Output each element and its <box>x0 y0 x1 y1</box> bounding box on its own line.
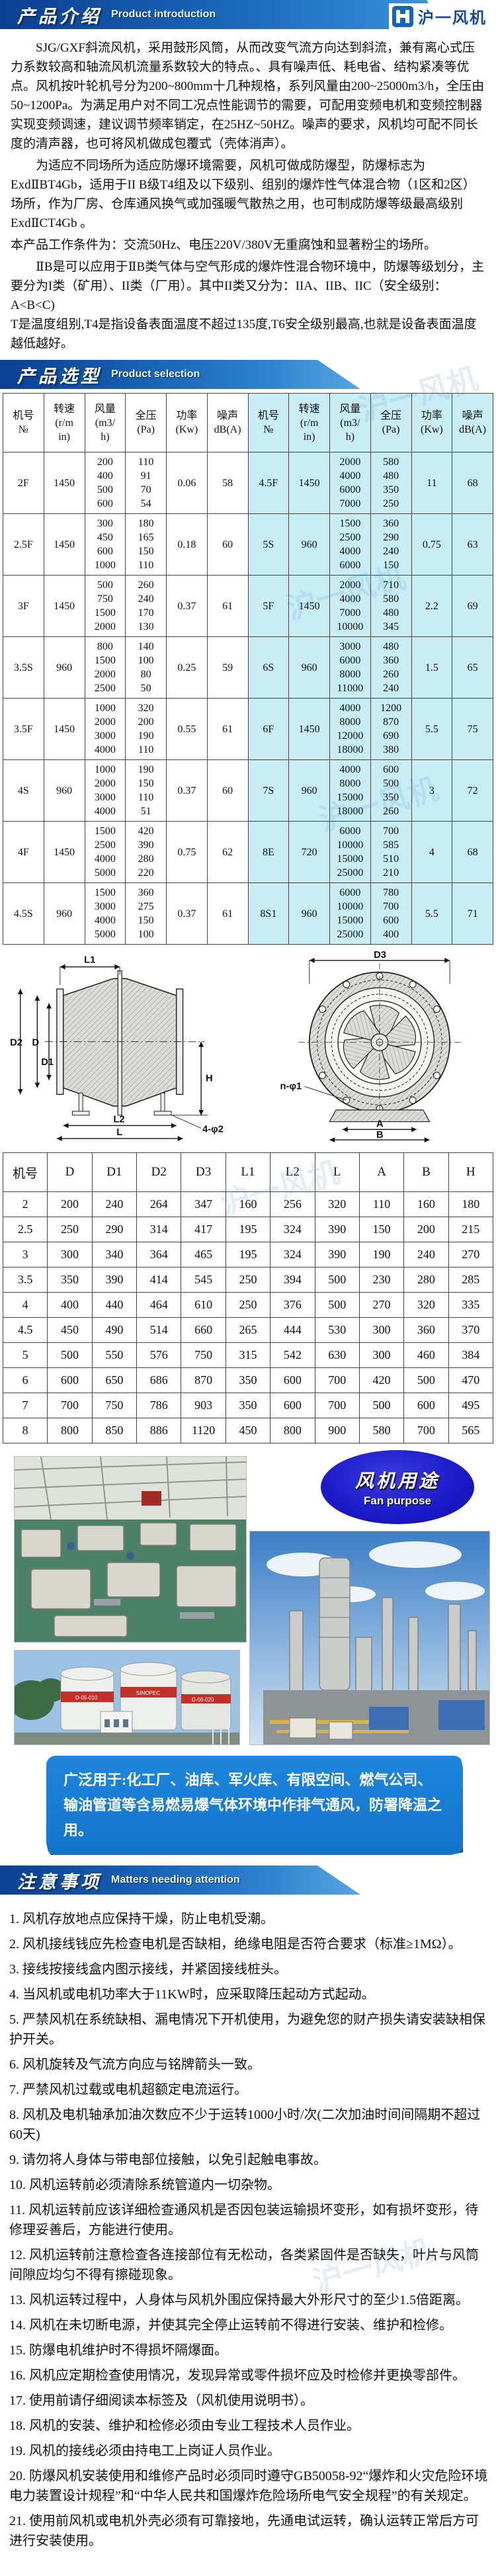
dimension-cell: 250 <box>226 1293 270 1318</box>
dimension-cell: 250 <box>48 1217 92 1242</box>
brand-logo-icon <box>392 5 414 28</box>
noise-cell: 65 <box>452 637 493 699</box>
noise-cell: 59 <box>207 637 248 699</box>
power-cell: 1.5 <box>411 637 452 699</box>
dimension-row: 2200240264347160256320110160180 <box>3 1192 493 1217</box>
pressure-cell: 420 390 280 220 <box>126 822 167 883</box>
flow-cell: 6000 10000 15000 25000 <box>330 883 371 945</box>
attention-item: 8. 风机及电机轴承加油次数应不少于运转1000小时/次(二次加油时间间隔期不超… <box>9 2105 488 2145</box>
speed-cell: 960 <box>289 883 330 945</box>
oil-storage-tanks-photo: D-05-010SINOPECD-06-020 <box>15 1651 239 1744</box>
dimension-cell: 270 <box>359 1293 403 1318</box>
dimension-cell: 160 <box>404 1192 448 1217</box>
model-cell: 3.5S <box>3 637 44 699</box>
intro-paragraph: ⅡB是可以应用于ⅡB类气体与空气形成的爆炸性混合物环境中，防爆等级划分，主要分为… <box>11 257 485 353</box>
model-cell: 8E <box>248 822 289 883</box>
dimension-column-header: D1 <box>92 1153 136 1192</box>
attention-item: 1. 风机存放地点应保持干燥，防止电机受潮。 <box>9 1909 488 1929</box>
dimension-column-header: 机号 <box>3 1153 48 1192</box>
power-cell: 0.55 <box>167 699 208 760</box>
purpose-badge: 风机用途 Fan purpose <box>321 1450 474 1524</box>
dimension-cell: 514 <box>137 1318 181 1343</box>
power-cell: 0.06 <box>167 452 208 514</box>
dimension-column-header: A <box>359 1153 403 1192</box>
brand-logo-text: 沪一风机 <box>418 5 487 28</box>
dimension-cell: 600 <box>270 1368 315 1393</box>
selection-row: 3F1450500 750 1500 2000260 240 170 1300.… <box>3 576 493 637</box>
attention-item: 20. 防爆风机安装使用和维修产品时必须同时遵守GB50058-92“爆炸和火灾… <box>9 2466 488 2506</box>
dimension-row: 4.5450490514660265444530300360370 <box>3 1318 493 1343</box>
dimension-cell: 4.5 <box>3 1318 48 1343</box>
noise-cell: 61 <box>207 576 248 637</box>
noise-cell: 69 <box>452 576 493 637</box>
dimension-row: 2.5250290314417195324390150200215 <box>3 1217 493 1242</box>
dimension-column-header: D3 <box>181 1153 226 1192</box>
dimension-cell: 3 <box>3 1242 48 1267</box>
selection-row: 3.5S960800 1500 2000 2500140 100 80 500.… <box>3 637 493 699</box>
pressure-cell: 1200 870 690 380 <box>370 699 411 760</box>
power-cell: 0.37 <box>167 883 208 945</box>
dimension-cell: 300 <box>359 1318 403 1343</box>
svg-text:D-05-010: D-05-010 <box>75 1695 98 1701</box>
dimension-cell: 610 <box>181 1293 226 1318</box>
pressure-cell: 700 585 510 210 <box>370 822 411 883</box>
dimension-cell: 2.5 <box>3 1217 48 1242</box>
dimension-cell: 465 <box>181 1242 226 1267</box>
dimension-cell: 256 <box>270 1192 315 1217</box>
dimension-cell: 470 <box>448 1368 493 1393</box>
model-cell: 4S <box>3 760 44 822</box>
dimension-cell: 550 <box>92 1343 136 1368</box>
attention-item: 6. 风机旋转及气流方向应与铭牌箭头一致。 <box>9 2055 488 2075</box>
dimension-cell: 160 <box>226 1192 270 1217</box>
flow-cell: 300 450 600 1000 <box>85 514 126 576</box>
attention-item: 13. 风机运转过程中，人身体与风机外围应保持最大外形尺寸的至少1.5倍距离。 <box>9 2290 488 2310</box>
dimension-cell: 250 <box>226 1267 270 1293</box>
flow-cell: 6000 10000 15000 25000 <box>330 822 371 883</box>
pressure-cell: 580 480 350 250 <box>370 452 411 514</box>
dimension-cell: 195 <box>226 1217 270 1242</box>
flow-cell: 500 750 1500 2000 <box>85 576 126 637</box>
svg-text:SINOPEC: SINOPEC <box>136 1690 160 1696</box>
dimension-cell: 5 <box>3 1343 48 1368</box>
attention-item: 15. 防爆电机维护时不得损坏隔爆面。 <box>9 2340 488 2360</box>
dim-label-L1: L1 <box>84 955 95 966</box>
dimension-column-header: H <box>448 1153 493 1192</box>
dimension-cell: 886 <box>137 1418 181 1443</box>
speed-cell: 1450 <box>44 576 85 637</box>
flow-cell: 4000 8000 12000 18000 <box>330 699 371 760</box>
power-cell: 11 <box>411 452 452 514</box>
dimension-cell: 200 <box>48 1192 92 1217</box>
dimension-row: 3300340364465195324390190240270 <box>3 1242 493 1267</box>
selection-row: 4.5S9601500 3000 4000 5000360 275 150 10… <box>3 883 493 945</box>
dimension-cell: 850 <box>92 1418 136 1443</box>
selection-column-header: 全压 (Pa) <box>370 394 411 452</box>
dimension-cell: 314 <box>137 1217 181 1242</box>
pressure-cell: 360 275 150 100 <box>126 883 167 945</box>
product-page: 沪一风机 沪一风机 沪一风机 沪一风机 沪一风机 沪一风机 产品介绍 Produ… <box>0 0 496 2576</box>
selection-column-header: 转速 (r/m in) <box>289 394 330 452</box>
dimension-row: 7700750786903350600700500600495 <box>3 1393 493 1418</box>
power-cell: 5.5 <box>411 883 452 945</box>
dim-label-bolt-holes: n-φ1 <box>280 1081 302 1092</box>
dimension-cell: 580 <box>359 1418 403 1443</box>
dimension-cell: 630 <box>315 1343 359 1368</box>
attention-title: 注意事项 <box>17 1868 102 1893</box>
purpose-title: 风机用途 <box>355 1467 440 1493</box>
dimension-cell: 215 <box>448 1217 493 1242</box>
dimension-table-header-row: 机号DD1D2D3L1L2LABH <box>3 1153 493 1192</box>
dimension-cell: 3.5 <box>3 1267 48 1293</box>
dim-label-D3: D3 <box>374 951 386 961</box>
dimension-cell: 300 <box>48 1242 92 1267</box>
dimension-cell: 420 <box>359 1368 403 1393</box>
pressure-cell: 180 165 150 110 <box>126 514 167 576</box>
dimension-cell: 290 <box>92 1217 136 1242</box>
pressure-cell: 190 150 110 51 <box>126 760 167 822</box>
selection-column-header: 噪声 dB(A) <box>452 394 493 452</box>
attention-item: 10. 风机运转前必须清除系统管道内一切杂物。 <box>9 2175 488 2195</box>
dimension-column-header: B <box>404 1153 448 1192</box>
pressure-cell: 110 91 70 54 <box>126 452 167 514</box>
attention-item: 11. 风机运转前应该详细检查通风机是否因包装运输损坏变形，如有损坏变形，待修理… <box>9 2200 488 2240</box>
model-cell: 7S <box>248 760 289 822</box>
application-banner: 广泛用于:化工厂、油库、军火库、有限空间、燃气公司、输油管道等含易燃易爆气体环境… <box>46 1756 463 1855</box>
speed-cell: 1450 <box>44 822 85 883</box>
power-cell: 0.37 <box>167 760 208 822</box>
dim-label-H: H <box>206 1074 213 1084</box>
attention-item: 5. 严禁风机在系统缺相、漏电情况下开机使用，为避免您的财产损失请安装缺相保护开… <box>9 2010 488 2049</box>
dim-label-B: B <box>376 1130 384 1140</box>
dimension-cell: 542 <box>270 1343 315 1368</box>
dimension-cell: 320 <box>404 1293 448 1318</box>
dimension-cell: 270 <box>448 1242 493 1267</box>
intro-paragraph: 本产品工作条件为：交流50Hz、电压220V/380V无重腐蚀和显著粉尘的场所。 <box>11 236 485 255</box>
selection-row: 2F1450200 400 500 600110 91 70 540.06584… <box>3 452 493 514</box>
dimension-cell: 320 <box>315 1192 359 1217</box>
attention-item: 18. 风机的安装、维护和检修必须由专业工程技术人员作业。 <box>9 2416 488 2436</box>
dimension-column-header: D <box>48 1153 92 1192</box>
power-cell: 4 <box>411 822 452 883</box>
purpose-section: 风机用途 Fan purpose <box>0 1449 496 1746</box>
dimension-cell: 576 <box>137 1343 181 1368</box>
dimension-cell: 500 <box>359 1393 403 1418</box>
model-cell: 5S <box>248 514 289 576</box>
selection-title-en: Product selection <box>111 368 200 380</box>
chemical-plant-photo <box>250 1531 489 1744</box>
model-cell: 2.5F <box>3 514 44 576</box>
dim-label-L2: L2 <box>113 1115 124 1125</box>
speed-cell: 1450 <box>289 576 330 637</box>
dim-label-A: A <box>376 1119 384 1129</box>
dimension-row: 3.5350390414545250394500230280285 <box>3 1267 493 1293</box>
dimension-cell: 285 <box>448 1267 493 1293</box>
attention-item: 7. 严禁风机过载或电机超额定电流运行。 <box>9 2080 488 2100</box>
page-title: 产品介绍 <box>17 2 102 28</box>
dimension-cell: 265 <box>226 1318 270 1343</box>
speed-cell: 1450 <box>44 699 85 760</box>
pressure-cell: 140 100 80 50 <box>126 637 167 699</box>
speed-cell: 960 <box>289 514 330 576</box>
power-cell: 3 <box>411 760 452 822</box>
dimension-cell: 700 <box>48 1393 92 1418</box>
dimension-cell: 800 <box>270 1418 315 1443</box>
intro-paragraph: SJG/GXF斜流风机，采用鼓形风筒，从而改变气流方向达到斜流，兼有离心式压力系… <box>11 38 485 153</box>
dimension-cell: 464 <box>137 1293 181 1318</box>
flow-cell: 2000 4000 7000 10000 <box>330 576 371 637</box>
dimension-cell: 264 <box>137 1192 181 1217</box>
selection-row: 2.5F1450300 450 600 1000180 165 150 1100… <box>3 514 493 576</box>
dimension-cell: 315 <box>226 1343 270 1368</box>
dimension-cell: 750 <box>181 1343 226 1368</box>
dimension-cell: 750 <box>92 1393 136 1418</box>
dimension-cell: 190 <box>359 1242 403 1267</box>
dimension-cell: 450 <box>48 1318 92 1343</box>
flow-cell: 3000 6000 8000 11000 <box>330 637 371 699</box>
dim-label-L: L <box>116 1127 122 1138</box>
attention-banner: 注意事项 Matters needing attention <box>0 1866 360 1895</box>
noise-cell: 71 <box>452 883 493 945</box>
dimension-cell: 7 <box>3 1393 48 1418</box>
pressure-cell: 600 500 350 260 <box>370 760 411 822</box>
dimension-cell: 686 <box>137 1368 181 1393</box>
pressure-cell: 260 240 170 130 <box>126 576 167 637</box>
flow-cell: 1000 2000 3000 4000 <box>85 760 126 822</box>
selection-column-header: 风量 (m3/ h) <box>85 394 126 452</box>
model-cell: 3F <box>3 576 44 637</box>
dimension-cell: 460 <box>404 1343 448 1368</box>
dimension-cell: 394 <box>270 1267 315 1293</box>
dimension-cell: 600 <box>404 1393 448 1418</box>
flow-cell: 200 400 500 600 <box>85 452 126 514</box>
selection-column-header: 功率 (Kw) <box>167 394 208 452</box>
selection-column-header: 功率 (Kw) <box>411 394 452 452</box>
pressure-cell: 320 200 190 110 <box>126 699 167 760</box>
dimension-cell: 364 <box>137 1242 181 1267</box>
application-text: 广泛用于:化工厂、油库、军火库、有限空间、燃气公司、输油管道等含易燃易爆气体环境… <box>63 1768 446 1843</box>
dimension-column-header: L <box>315 1153 359 1192</box>
speed-cell: 1450 <box>289 452 330 514</box>
power-cell: 0.75 <box>167 822 208 883</box>
dimension-cell: 495 <box>448 1393 493 1418</box>
selection-column-header: 全压 (Pa) <box>126 394 167 452</box>
dimension-cell: 450 <box>226 1418 270 1443</box>
noise-cell: 63 <box>452 514 493 576</box>
dimension-cell: 500 <box>404 1368 448 1393</box>
dimension-cell: 376 <box>270 1293 315 1318</box>
selection-table: 机号 №转速 (r/m in)风量 (m3/ h)全压 (Pa)功率 (Kw)噪… <box>3 393 493 945</box>
model-cell: 5F <box>248 576 289 637</box>
dimension-cell: 414 <box>137 1267 181 1293</box>
selection-column-header: 风量 (m3/ h) <box>330 394 371 452</box>
dimension-cell: 324 <box>270 1242 315 1267</box>
dimension-cell: 700 <box>315 1368 359 1393</box>
dimension-cell: 565 <box>448 1418 493 1443</box>
noise-cell: 62 <box>207 822 248 883</box>
attention-item: 4. 当风机或电机功率大于11KW时，应采取降压起动方式起动。 <box>9 1985 488 2004</box>
fan-side-view-diagram: L1 D2 D D1 H L2 L 4-φ2 <box>4 951 252 1143</box>
dimension-cell: 195 <box>226 1242 270 1267</box>
noise-cell: 72 <box>452 760 493 822</box>
selection-row: 3.5F14501000 2000 3000 4000320 200 190 1… <box>3 699 493 760</box>
fan-front-view-diagram: D3 A B n-φ1 <box>264 951 492 1143</box>
dimension-cell: 870 <box>181 1368 226 1393</box>
dimension-cell: 417 <box>181 1217 226 1242</box>
dimension-cell: 600 <box>48 1368 92 1393</box>
model-cell: 6F <box>248 699 289 760</box>
dimension-row: 6600650686870350600700420500470 <box>3 1368 493 1393</box>
dimension-cell: 340 <box>92 1242 136 1267</box>
model-cell: 3.5F <box>3 699 44 760</box>
dimension-cell: 1120 <box>181 1418 226 1443</box>
speed-cell: 720 <box>289 822 330 883</box>
dimension-cell: 230 <box>359 1267 403 1293</box>
dimension-cell: 4 <box>3 1293 48 1318</box>
model-cell: 4F <box>3 822 44 883</box>
dimension-cell: 500 <box>315 1293 359 1318</box>
selection-column-header: 机号 № <box>248 394 289 452</box>
power-cell: 2.2 <box>411 576 452 637</box>
dimension-cell: 400 <box>48 1293 92 1318</box>
selection-title: 产品选型 <box>17 362 102 388</box>
pressure-cell: 480 360 260 240 <box>370 637 411 699</box>
attention-list: 1. 风机存放地点应保持干燥，防止电机受潮。2. 风机接线钱应先检查电机是否缺相… <box>0 1895 496 2576</box>
intro-paragraph: 为适应不同场所为适应防爆环境需要，风机可做成防爆型，防爆标志为ExdⅡBT4Gb… <box>11 156 485 233</box>
model-cell: 8S1 <box>248 883 289 945</box>
flow-cell: 4000 8000 15000 18000 <box>330 760 371 822</box>
dimension-cell: 500 <box>48 1343 92 1368</box>
dimension-cell: 180 <box>448 1192 493 1217</box>
dimension-cell: 500 <box>315 1267 359 1293</box>
attention-item: 2. 风机接线钱应先检查电机是否缺相，绝缘电阻是否符合要求（标准≥1MΩ）。 <box>9 1934 488 1954</box>
dimension-cell: 660 <box>181 1318 226 1343</box>
dimension-table: 机号DD1D2D3L1L2LABH 2200240264347160256320… <box>3 1152 493 1443</box>
selection-column-header: 噪声 dB(A) <box>207 394 248 452</box>
selection-row: 4F14501500 2500 4000 5000420 390 280 220… <box>3 822 493 883</box>
noise-cell: 68 <box>452 822 493 883</box>
selection-table-header-row: 机号 №转速 (r/m in)风量 (m3/ h)全压 (Pa)功率 (Kw)噪… <box>3 394 493 452</box>
flow-cell: 1500 2500 4000 5000 <box>85 822 126 883</box>
dimension-cell: 240 <box>92 1192 136 1217</box>
dimension-cell: 360 <box>404 1318 448 1343</box>
noise-cell: 61 <box>207 883 248 945</box>
dim-label-D2: D2 <box>10 1038 22 1049</box>
dimension-cell: 350 <box>48 1267 92 1293</box>
model-cell: 4.5F <box>248 452 289 514</box>
model-cell: 4.5S <box>3 883 44 945</box>
dimension-cell: 6 <box>3 1368 48 1393</box>
dimension-cell: 2 <box>3 1192 48 1217</box>
dimension-column-header: D2 <box>137 1153 181 1192</box>
noise-cell: 61 <box>207 699 248 760</box>
power-cell: 0.18 <box>167 514 208 576</box>
dimension-cell: 200 <box>404 1217 448 1242</box>
dimension-cell: 110 <box>359 1192 403 1217</box>
speed-cell: 1450 <box>289 699 330 760</box>
dimension-cell: 490 <box>92 1318 136 1343</box>
dimension-cell: 384 <box>448 1343 493 1368</box>
attention-item: 16. 风机应定期检查使用情况，发现异常或零件损坏应及时检修并更换零部件。 <box>9 2366 488 2385</box>
dimension-cell: 903 <box>181 1393 226 1418</box>
attention-item: 3. 接线按接线盒内图示接线，并紧固接线桩头。 <box>9 1959 488 1979</box>
speed-cell: 960 <box>44 760 85 822</box>
dimension-cell: 700 <box>404 1418 448 1443</box>
power-cell: 5.5 <box>411 699 452 760</box>
dimension-diagrams: L1 D2 D D1 H L2 L 4-φ2 <box>0 945 496 1143</box>
noise-cell: 58 <box>207 452 248 514</box>
page-title-en: Product introduction <box>111 9 216 21</box>
dimension-cell: 530 <box>315 1318 359 1343</box>
flow-cell: 1500 3000 4000 5000 <box>85 883 126 945</box>
dimension-cell: 150 <box>359 1217 403 1242</box>
attention-title-en: Matters needing attention <box>111 1874 240 1886</box>
dimension-cell: 240 <box>404 1242 448 1267</box>
pressure-cell: 780 700 600 400 <box>370 883 411 945</box>
dim-label-D: D <box>32 1038 40 1049</box>
speed-cell: 960 <box>289 760 330 822</box>
attention-item: 17. 使用前请仔细阅读本标签及（风机使用说明书）。 <box>9 2391 488 2411</box>
selection-banner: 产品选型 Product selection <box>0 360 360 389</box>
dimension-cell: 440 <box>92 1293 136 1318</box>
dimension-cell: 390 <box>315 1217 359 1242</box>
dimension-cell: 335 <box>448 1293 493 1318</box>
dimension-cell: 8 <box>3 1418 48 1443</box>
noise-cell: 75 <box>452 699 493 760</box>
pressure-cell: 710 580 480 345 <box>370 576 411 637</box>
selection-column-header: 机号 № <box>3 394 44 452</box>
dimension-cell: 300 <box>359 1343 403 1368</box>
dimension-cell: 800 <box>48 1418 92 1443</box>
model-cell: 2F <box>3 452 44 514</box>
flow-cell: 1000 2000 3000 4000 <box>85 699 126 760</box>
noise-cell: 60 <box>207 514 248 576</box>
selection-row: 4S9601000 2000 3000 4000190 150 110 510.… <box>3 760 493 822</box>
pressure-cell: 360 290 240 150 <box>370 514 411 576</box>
flow-cell: 800 1500 2000 2500 <box>85 637 126 699</box>
dimension-cell: 700 <box>315 1393 359 1418</box>
dimension-cell: 280 <box>404 1267 448 1293</box>
intro-section: SJG/GXF斜流风机，采用鼓形风筒，从而改变气流方向达到斜流，兼有离心式压力系… <box>0 29 496 360</box>
dimension-row: 88008508861120450800900580700565 <box>3 1418 493 1443</box>
power-cell: 0.75 <box>411 514 452 576</box>
selection-column-header: 转速 (r/m in) <box>44 394 85 452</box>
speed-cell: 1450 <box>44 514 85 576</box>
dimension-cell: 350 <box>226 1368 270 1393</box>
dimension-column-header: L2 <box>270 1153 315 1192</box>
attention-item: 14. 风机在未切断电源，并使其完全停止运转前不得进行安装、维护和检修。 <box>9 2315 488 2335</box>
power-cell: 0.25 <box>167 637 208 699</box>
model-cell: 6S <box>248 637 289 699</box>
dimension-cell: 350 <box>226 1393 270 1418</box>
speed-cell: 960 <box>289 637 330 699</box>
factory-workshop-photo <box>15 1457 246 1642</box>
speed-cell: 960 <box>44 637 85 699</box>
dimension-cell: 900 <box>315 1418 359 1443</box>
dimension-cell: 650 <box>92 1368 136 1393</box>
speed-cell: 1450 <box>44 452 85 514</box>
dimension-cell: 600 <box>270 1393 315 1418</box>
dimension-cell: 444 <box>270 1318 315 1343</box>
dimension-cell: 390 <box>92 1267 136 1293</box>
dimension-cell: 545 <box>181 1267 226 1293</box>
dimension-cell: 324 <box>270 1217 315 1242</box>
noise-cell: 68 <box>452 452 493 514</box>
dimension-cell: 370 <box>448 1318 493 1343</box>
attention-item: 21. 使用前风机或电机外壳必须有可靠接地，先通电试运转，确认运转正常后方可进行… <box>9 2511 488 2551</box>
dimension-cell: 347 <box>181 1192 226 1217</box>
dimension-column-header: L1 <box>226 1153 270 1192</box>
